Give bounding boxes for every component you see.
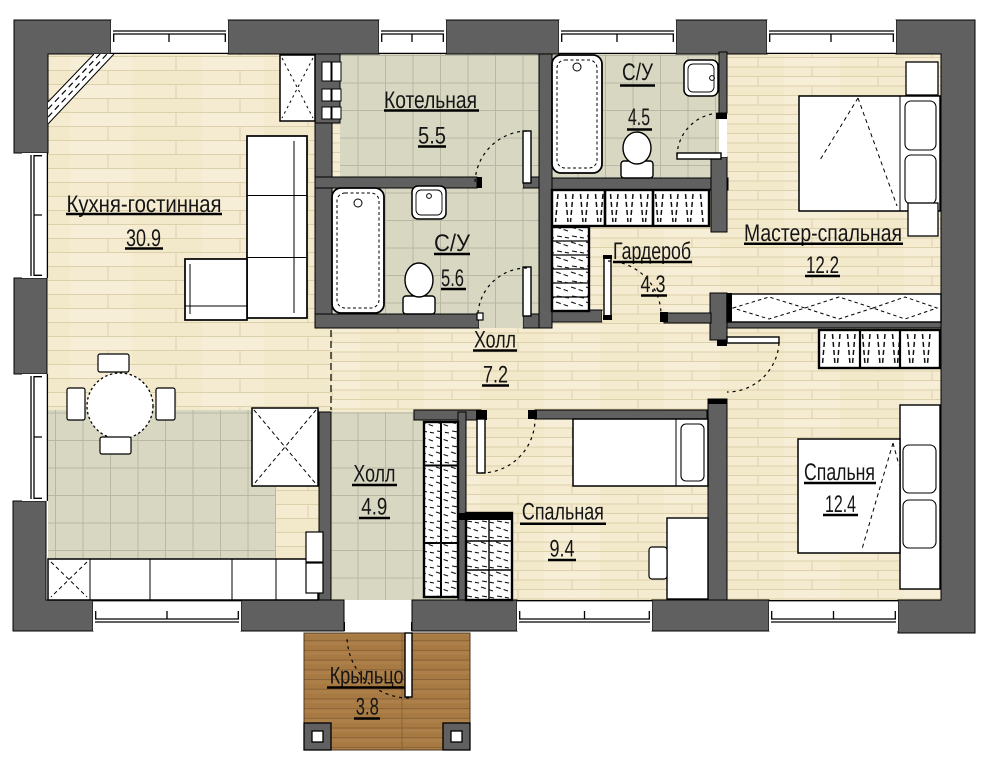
svg-text:Крыльцо: Крыльцо [330,663,404,690]
svg-text:4.3: 4.3 [641,271,666,298]
svg-text:Спальная: Спальная [522,499,604,526]
svg-text:С/У: С/У [622,59,654,86]
svg-text:Холл: Холл [353,461,395,488]
svg-text:3.8: 3.8 [356,694,379,721]
svg-text:4.9: 4.9 [361,494,387,521]
svg-text:4.5: 4.5 [628,104,650,131]
svg-text:9.4: 9.4 [550,536,575,563]
